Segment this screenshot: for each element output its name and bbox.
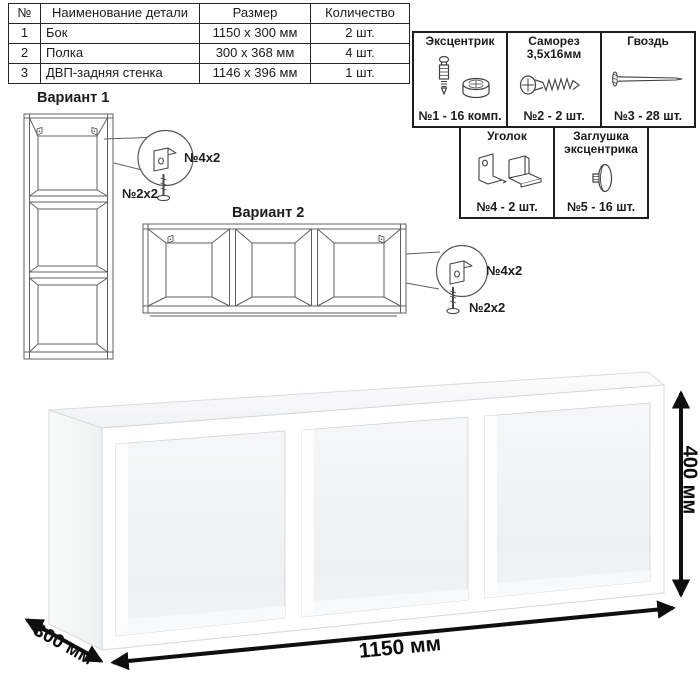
nail-icon <box>606 59 690 99</box>
shelf-opening <box>302 417 468 617</box>
part-name: Полка <box>41 44 200 64</box>
hardware-row-1: Эксцентрик №1 - 16 ком <box>410 31 698 128</box>
variant1-title: Вариант 1 <box>37 90 109 106</box>
variant2-screw-qty-label: №2х2 <box>469 300 505 315</box>
part-num: 2 <box>9 44 41 64</box>
cam-lock-icon <box>418 54 502 104</box>
part-name: Бок <box>41 24 200 44</box>
hardware-qty-label: №5 - 16 шт. <box>567 200 635 214</box>
hardware-title: Эксцентрик <box>426 35 495 48</box>
corner-bracket-mark <box>37 128 42 136</box>
variant2-cabinet-drawing <box>143 224 406 316</box>
variant1-screw-qty-label: №2х2 <box>112 186 158 201</box>
part-size: 300 x 368 мм <box>200 44 311 64</box>
part-num: 3 <box>9 64 41 84</box>
part-qty: 4 шт. <box>311 44 410 64</box>
variant1-bracket-qty-label: №4х2 <box>184 150 220 165</box>
hardware-cell-cam-lock: Эксцентрик №1 - 16 ком <box>412 31 508 128</box>
assembly-instruction-sheet: № Наименование детали Размер Количество … <box>0 0 700 690</box>
table-row: 3 ДВП-задняя стенка 1146 x 396 мм 1 шт. <box>9 64 410 84</box>
hardware-cell-corner-bracket: Уголок №4 - 2 шт. <box>459 126 555 219</box>
variant2-title: Вариант 2 <box>232 205 304 221</box>
part-qty: 2 шт. <box>311 24 410 44</box>
variant2-bracket-qty-label: №4х2 <box>486 263 522 278</box>
shelf-opening <box>116 431 285 636</box>
hardware-qty-label: №2 - 2 шт. <box>523 109 584 123</box>
hardware-title: Уголок <box>487 130 527 143</box>
table-row: 1 Бок 1150 x 300 мм 2 шт. <box>9 24 410 44</box>
shelf-inner-wall <box>485 415 497 598</box>
hardware-title: Саморез 3,5х16мм <box>510 35 598 62</box>
hardware-qty-label: №4 - 2 шт. <box>476 200 537 214</box>
col-header-qty: Количество <box>311 4 410 24</box>
shelf-3d-render <box>49 372 664 650</box>
col-header-name: Наименование детали <box>41 4 200 24</box>
corner-bracket-mark <box>379 236 384 244</box>
screw-icon <box>512 65 596 105</box>
hardware-title: Гвоздь <box>627 35 669 48</box>
hardware-cell-nail: Гвоздь №3 - 28 шт. <box>600 31 696 128</box>
table-header-row: № Наименование детали Размер Количество <box>9 4 410 24</box>
height-dimension-label: 400 мм <box>678 446 700 515</box>
corner-bracket-icon <box>465 150 549 194</box>
shelf-opening <box>485 403 650 598</box>
table-row: 2 Полка 300 x 368 мм 4 шт. <box>9 44 410 64</box>
variant1-cabinet-drawing <box>24 114 113 359</box>
cam-cap-icon <box>559 159 643 197</box>
parts-table: № Наименование детали Размер Количество … <box>8 3 410 84</box>
part-name: ДВП-задняя стенка <box>41 64 200 84</box>
corner-bracket-mark <box>92 128 97 136</box>
hardware-qty-label: №1 - 16 комп. <box>418 109 501 123</box>
corner-bracket-mark <box>168 236 173 244</box>
shelf-inner-wall <box>302 429 314 617</box>
hardware-qty-label: №3 - 28 шт. <box>614 109 682 123</box>
part-size: 1146 x 396 мм <box>200 64 311 84</box>
hardware-cell-screw: Саморез 3,5х16мм №2 - 2 шт. <box>506 31 602 128</box>
hardware-cell-cam-cap: Заглушка эксцентрика №5 - 16 шт. <box>553 126 649 219</box>
col-header-num: № <box>9 4 41 24</box>
part-size: 1150 x 300 мм <box>200 24 311 44</box>
part-num: 1 <box>9 24 41 44</box>
hardware-row-2: Уголок №4 - 2 шт. Заглушка эксцентрика <box>410 128 698 219</box>
shelf-inner-wall <box>116 443 128 636</box>
hardware-title: Заглушка эксцентрика <box>557 130 645 157</box>
col-header-size: Размер <box>200 4 311 24</box>
shelf-left-face <box>49 410 102 650</box>
hardware-box: Эксцентрик №1 - 16 ком <box>410 31 698 219</box>
part-qty: 1 шт. <box>311 64 410 84</box>
